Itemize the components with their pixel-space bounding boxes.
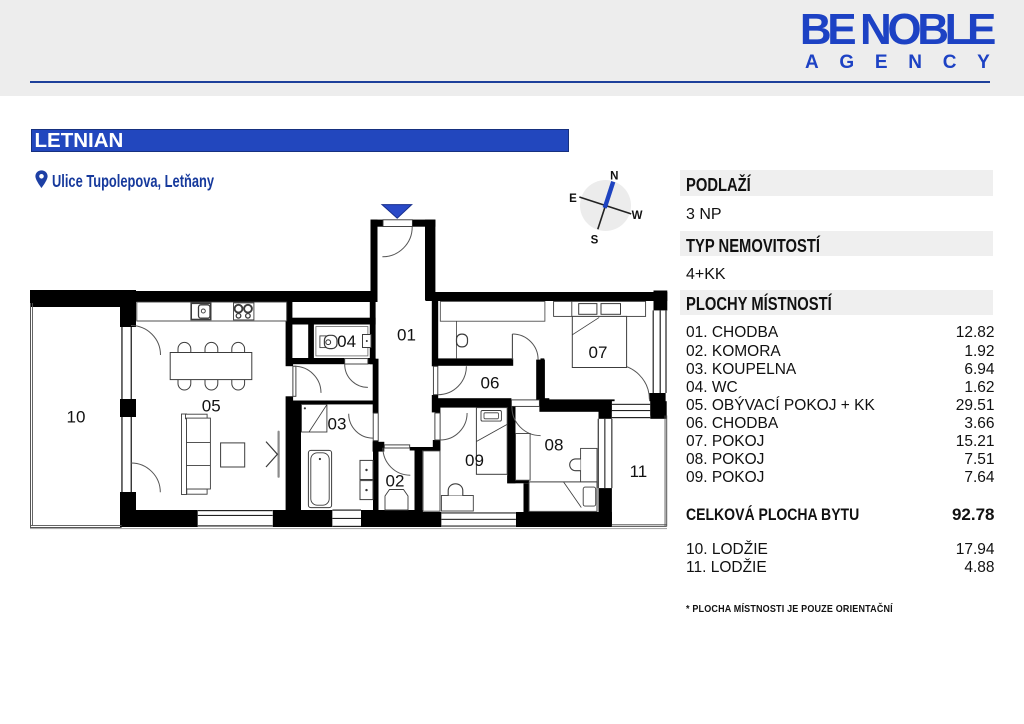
svg-text:03: 03 bbox=[328, 415, 347, 434]
svg-text:08: 08 bbox=[545, 436, 564, 455]
svg-text:02: 02 bbox=[386, 472, 405, 491]
svg-text:06: 06 bbox=[481, 374, 500, 393]
svg-text:09: 09 bbox=[465, 451, 484, 470]
svg-text:11: 11 bbox=[630, 462, 648, 481]
svg-text:E: E bbox=[569, 193, 577, 205]
svg-text:01: 01 bbox=[397, 326, 416, 345]
svg-text:07: 07 bbox=[589, 343, 608, 362]
svg-text:S: S bbox=[591, 235, 599, 247]
svg-text:W: W bbox=[632, 210, 643, 222]
svg-text:N: N bbox=[610, 171, 618, 183]
svg-text:05: 05 bbox=[202, 397, 221, 416]
svg-text:04: 04 bbox=[337, 332, 356, 351]
svg-text:10: 10 bbox=[67, 408, 86, 427]
